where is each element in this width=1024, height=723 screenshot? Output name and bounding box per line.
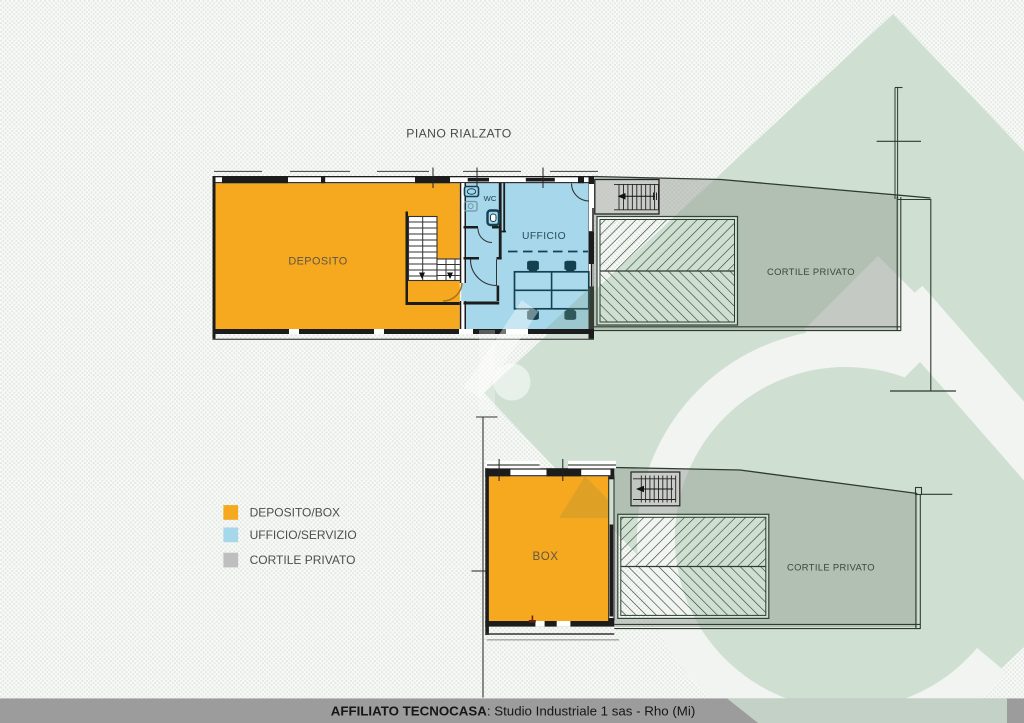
svg-text:AFFILIATO TECNOCASA: Studio In: AFFILIATO TECNOCASA: Studio Industriale …: [331, 704, 696, 719]
svg-text:UFFICIO/SERVIZIO: UFFICIO/SERVIZIO: [250, 528, 357, 542]
svg-text:DEPOSITO/BOX: DEPOSITO/BOX: [250, 506, 340, 520]
svg-text:BOX: BOX: [533, 550, 559, 563]
svg-text:CORTILE PRIVATO: CORTILE PRIVATO: [250, 553, 356, 567]
svg-text:CORTILE PRIVATO: CORTILE PRIVATO: [767, 266, 855, 277]
svg-text:PIANO RIALZATO: PIANO RIALZATO: [406, 126, 511, 140]
svg-text:DEPOSITO: DEPOSITO: [288, 256, 347, 268]
svg-text:WC: WC: [484, 194, 497, 203]
svg-text:UFFICIO: UFFICIO: [522, 231, 566, 242]
svg-text:CORTILE PRIVATO: CORTILE PRIVATO: [787, 561, 875, 572]
